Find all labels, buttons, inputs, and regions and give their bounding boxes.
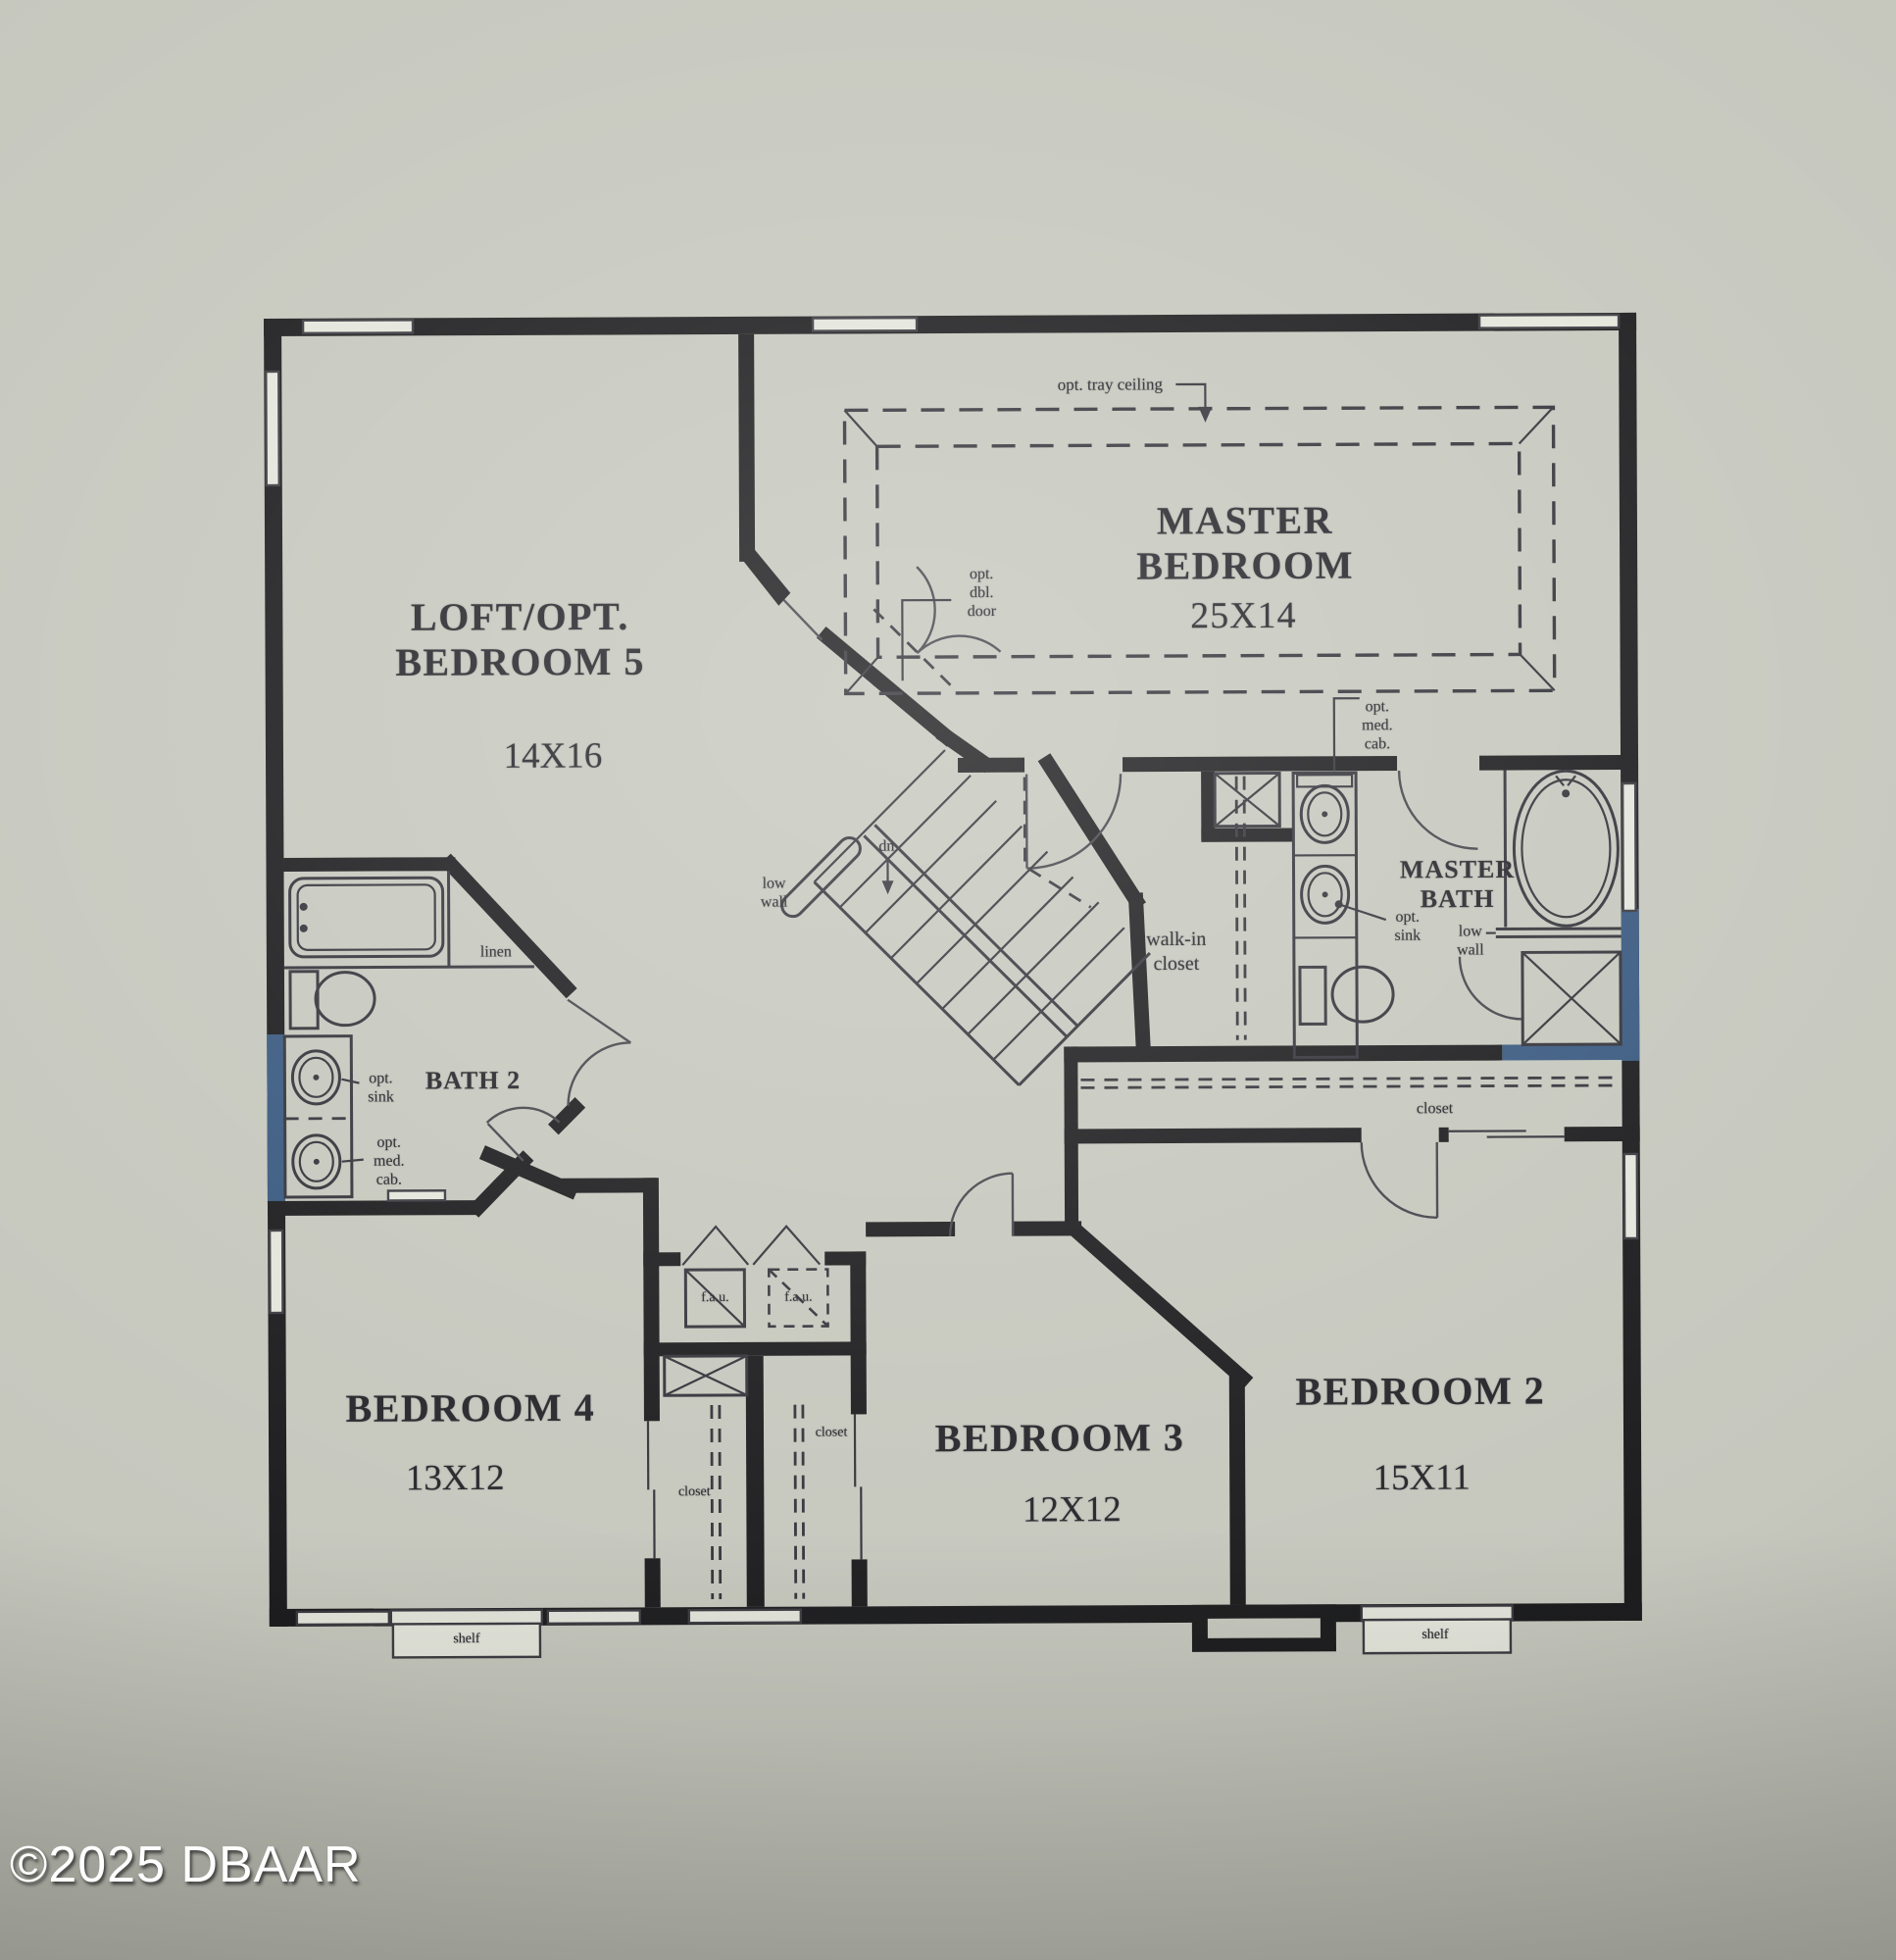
shelf-bedroom4-label: shelf	[453, 1632, 479, 1647]
stairs-dn-label: dn	[878, 837, 894, 856]
fau-label-1: f.a.u.	[701, 1290, 728, 1306]
toilet-icon	[290, 972, 318, 1029]
floor-plan-photo: opt. tray ceiling MASTER BEDROOM 25X14 o…	[0, 0, 1896, 1960]
dim-master-bedroom: 25X14	[1190, 595, 1297, 638]
door-leaf-icon	[783, 600, 822, 640]
tray-ceiling-pointer	[1175, 384, 1205, 409]
dbl-door-label: opt. dbl. door	[967, 565, 996, 622]
med-cab-bath2-label: opt. med. cab.	[374, 1133, 405, 1190]
dim-bedroom2: 15X11	[1372, 1458, 1471, 1500]
closet-master-label: closet	[1417, 1099, 1453, 1118]
room-label-bedroom2: BEDROOM 2	[1295, 1369, 1545, 1415]
room-label-bedroom4: BEDROOM 4	[345, 1385, 595, 1432]
arrow-icon	[1198, 407, 1212, 423]
staircase	[776, 749, 1150, 1086]
fau-units	[664, 1270, 828, 1396]
floor-plan: opt. tray ceiling MASTER BEDROOM 25X14 o…	[0, 0, 1896, 1960]
window-icon	[270, 1231, 282, 1313]
window-icon	[1624, 1154, 1637, 1238]
window-icon	[297, 1611, 389, 1624]
room-label-master-bath: MASTER BATH	[1400, 855, 1516, 914]
low-wall-master-label: low wall	[1457, 922, 1484, 959]
window-icon	[303, 320, 413, 332]
room-label-loft: LOFT/OPT. BEDROOM 5	[395, 594, 645, 684]
closet-bedroom4-label: closet	[678, 1484, 711, 1500]
window-icon	[266, 372, 279, 485]
master-bath-tile-wall	[1622, 909, 1640, 1061]
room-label-bedroom3: BEDROOM 3	[935, 1415, 1185, 1461]
tray-ceiling-label: opt. tray ceiling	[1058, 375, 1163, 394]
dim-bedroom3: 12X12	[1023, 1489, 1122, 1532]
down-arrow-icon	[882, 880, 894, 894]
toilet-icon	[1300, 967, 1325, 1024]
med-cab-master-label: opt. med. cab.	[1362, 697, 1393, 754]
floor-plan-drawing	[0, 0, 1896, 1960]
shelf-bedroom2-label: shelf	[1422, 1628, 1448, 1643]
room-label-master-bedroom: MASTER BEDROOM	[1136, 498, 1354, 588]
closet-bedroom3-label: closet	[816, 1425, 848, 1440]
window-icon	[548, 1610, 640, 1623]
low-wall	[1496, 929, 1622, 930]
low-wall-cap	[777, 833, 865, 921]
low-wall-stairs-label: low wall	[761, 875, 788, 912]
bathtub-icon	[290, 878, 443, 957]
bath2-tile-wall	[267, 1034, 285, 1211]
fau-label-2: f.a.u.	[784, 1290, 812, 1306]
linen-label: linen	[480, 942, 512, 961]
window-icon	[813, 318, 917, 330]
watermark: ©2025 DBAAR	[10, 1835, 362, 1894]
room-label-walk-in-closet: walk-in closet	[1146, 928, 1206, 977]
dim-bedroom4: 13X12	[406, 1458, 505, 1500]
opt-sink-master-label: opt. sink	[1394, 908, 1421, 945]
dim-loft: 14X16	[504, 735, 603, 778]
window-icon	[689, 1610, 801, 1623]
window-icon	[1479, 315, 1619, 328]
window-icon	[1622, 783, 1636, 911]
stair-railing	[874, 824, 1078, 1028]
room-label-bath2: BATH 2	[425, 1066, 521, 1095]
opt-sink-bath2-label: opt. sink	[368, 1069, 394, 1106]
